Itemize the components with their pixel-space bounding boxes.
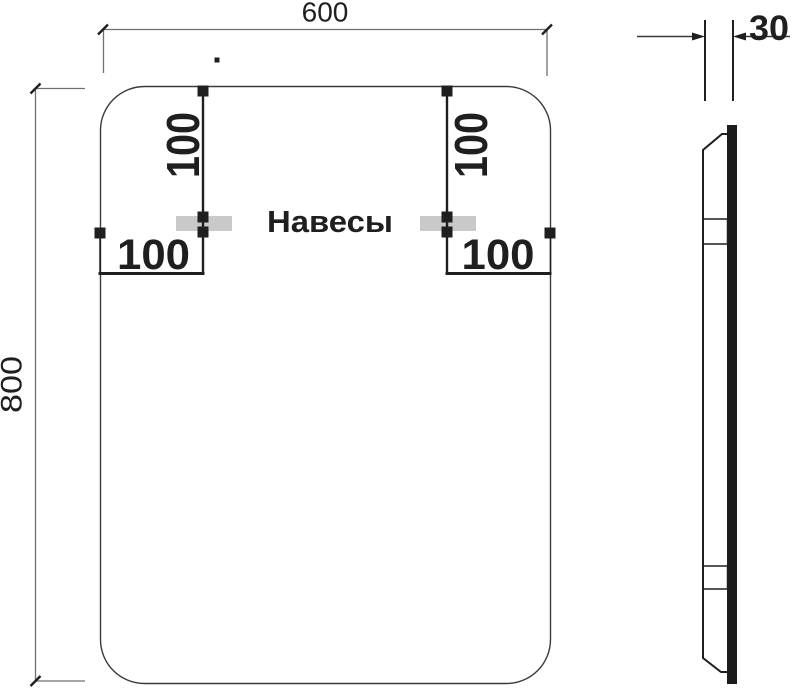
- marker-left-hanger-lower: [198, 227, 209, 238]
- width-dimension: [103, 30, 547, 77]
- thickness-dimension-label: 30: [749, 9, 789, 48]
- marker-right-hanger-lower: [442, 227, 453, 238]
- right-hanger-side-offset-label: 100: [462, 231, 535, 279]
- thickness-arrows: [692, 33, 746, 41]
- marker-left-hanger-upper: [198, 212, 209, 223]
- arrow-right-icon: [692, 33, 705, 41]
- hangers-label: Навесы: [267, 204, 393, 239]
- side-bracket-top: [703, 219, 728, 244]
- side-bracket-bottom: [703, 566, 728, 589]
- height-dimension: [36, 89, 86, 682]
- marker-left-top-edge: [198, 86, 209, 97]
- mirror-side-profile: [703, 134, 727, 672]
- marker-left-panel-edge: [95, 228, 106, 239]
- marker-right-hanger-upper: [442, 212, 453, 223]
- mirror-technical-drawing: 600 800 Навесы: [0, 0, 799, 689]
- left-hanger-top-offset-label: 100: [157, 112, 209, 178]
- arrow-left-icon: [733, 33, 746, 41]
- marker-right-panel-edge: [545, 228, 556, 239]
- thickness-extension-lines: [705, 20, 733, 101]
- top-center-mark: [215, 58, 220, 63]
- mirror-side-glass: [727, 125, 737, 684]
- width-dimension-label: 600: [302, 0, 349, 28]
- thickness-dimension: 30: [637, 9, 790, 101]
- side-view: [703, 125, 737, 684]
- front-view: 600 800 Навесы: [0, 0, 556, 686]
- right-hanger-top-offset-label: 100: [445, 112, 497, 178]
- drawing-canvas: 600 800 Навесы: [0, 0, 799, 689]
- height-dimension-label: 800: [0, 356, 29, 413]
- left-hanger-side-offset-label: 100: [117, 231, 190, 279]
- marker-right-top-edge: [442, 86, 453, 97]
